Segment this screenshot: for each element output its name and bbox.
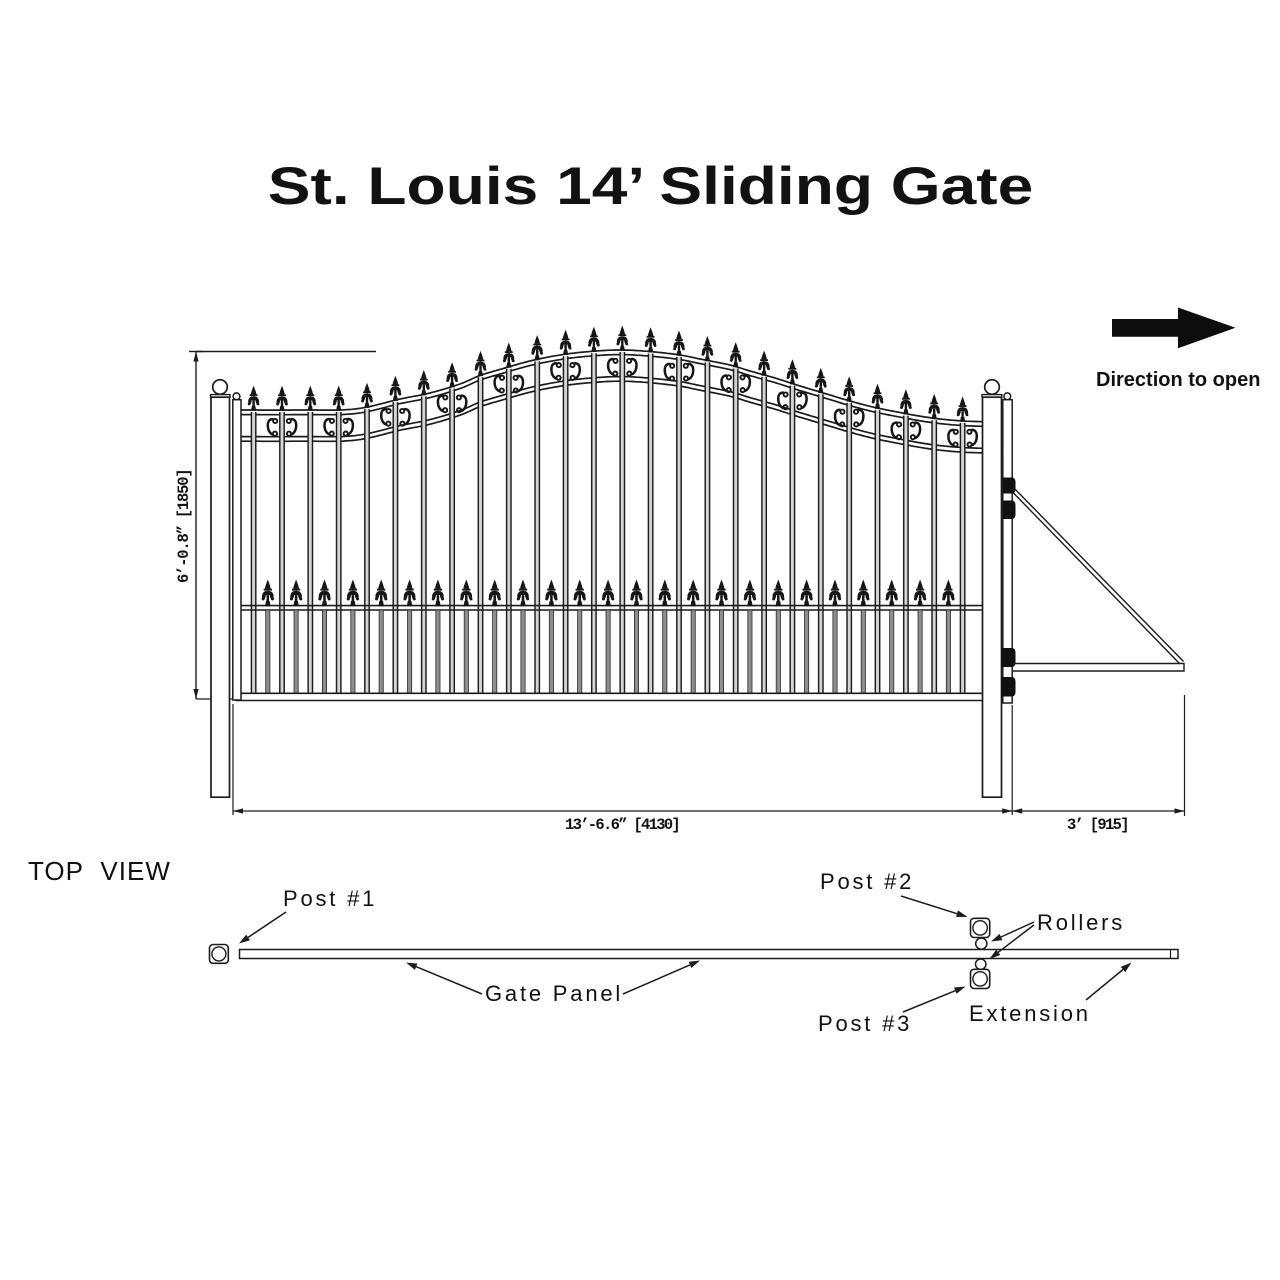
svg-text:Post #1: Post #1 <box>283 886 377 911</box>
svg-text:Post #2: Post #2 <box>820 869 914 894</box>
svg-text:Post #3: Post #3 <box>818 1011 912 1036</box>
svg-text:Gate Panel: Gate Panel <box>485 981 623 1006</box>
svg-text:Rollers: Rollers <box>1037 910 1125 935</box>
svg-text:13’-6.6” [4130]: 13’-6.6” [4130] <box>565 816 679 834</box>
svg-text:6’-0.8” [1850]: 6’-0.8” [1850] <box>175 470 193 583</box>
svg-text:Direction to open: Direction to open <box>1096 369 1260 391</box>
svg-text:Extension: Extension <box>969 1001 1091 1026</box>
svg-text:TOP VIEW: TOP VIEW <box>28 856 171 886</box>
svg-text:3’ [915]: 3’ [915] <box>1067 816 1128 834</box>
